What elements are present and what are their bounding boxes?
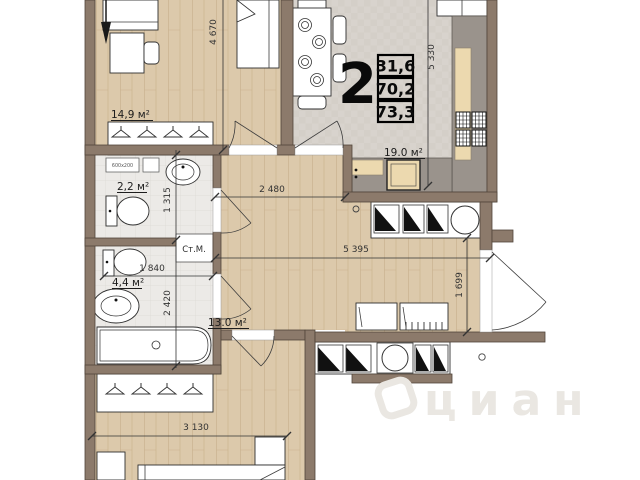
floorplan-drawing: 600x200 Ст.М.: [0, 0, 640, 480]
wall-bedroom-living: [281, 0, 293, 147]
washing-machine-niche: Ст.М.: [176, 234, 213, 262]
area-main-value: 70,2: [376, 80, 415, 99]
wall-bath-bottom: [85, 365, 221, 374]
floor-hallway: [221, 155, 345, 330]
watermark-text: циан: [424, 375, 596, 426]
chair: [298, 96, 326, 109]
bed: [103, 0, 158, 30]
dim-1315: 1 315: [163, 187, 173, 213]
cian-logo-icon: [376, 378, 416, 418]
floorplan-canvas: 600x200 Ст.М.: [0, 0, 640, 480]
label-wc: 2,2 м²: [117, 181, 149, 193]
dim-1699: 1 699: [455, 272, 465, 298]
label-bathroom: 4,4 м²: [112, 277, 144, 289]
dim-2480: 2 480: [259, 185, 285, 195]
dim-4670: 4 670: [209, 19, 219, 45]
wc-sink: [166, 159, 200, 185]
unit-spec: 2 31,6 70,2 73,3: [338, 52, 415, 122]
desk: [97, 452, 125, 480]
toilet-tank: [106, 196, 117, 226]
washer-circle: [451, 206, 479, 234]
kitchen-sink-unit: [387, 160, 420, 190]
wall-living-bottom: [343, 192, 497, 202]
closet-bottom: [315, 342, 450, 374]
dim-5395: 5 395: [343, 245, 369, 255]
closet-corridor-top: [371, 202, 482, 238]
toilet-tank: [103, 250, 114, 276]
watermark: циан: [376, 375, 596, 426]
toilet-bowl: [117, 197, 149, 225]
floor-bedroom-bottom-ext: [221, 340, 305, 374]
wall-entry-stub: [492, 230, 513, 242]
area-living-value: 31,6: [376, 57, 415, 76]
chair: [144, 42, 159, 64]
dining-table: [293, 8, 331, 96]
wall-bedroom2-right: [305, 330, 315, 480]
dim-5330: 5 330: [427, 44, 437, 70]
stove-burner-icon: [456, 112, 470, 128]
label-hallway: 13.0 м²: [208, 317, 247, 329]
vent-size-label: 600x200: [112, 163, 133, 169]
rooms-count: 2: [338, 52, 377, 117]
dim-1840: 1 840: [139, 264, 165, 274]
bathtub: [97, 327, 211, 364]
wardrobe-bottom: [97, 374, 213, 412]
wall-wc-hall: [213, 155, 221, 188]
wall-entry-bottom: [315, 332, 545, 342]
label-bedroom-top: 14,9 м²: [111, 109, 150, 121]
dim-2420: 2 420: [163, 290, 173, 316]
bath-sink: [93, 289, 139, 323]
washer-circle: [382, 345, 408, 371]
door-stop: [479, 354, 485, 360]
stove-burner-icon: [472, 112, 486, 128]
nightstand: [255, 437, 285, 465]
stove-burner-icon: [456, 130, 470, 146]
stove-burner-icon: [472, 130, 486, 146]
label-kitchen-living: 19.0 м²: [384, 147, 423, 159]
area-total-value: 73,3: [376, 103, 415, 122]
door-entry: [492, 252, 546, 330]
bed: [138, 465, 285, 480]
dim-3130: 3 130: [183, 423, 209, 433]
wall-wc-bath: [85, 238, 176, 246]
shoe-rack: [356, 303, 448, 330]
wall-outer-right: [487, 0, 497, 202]
chair: [333, 16, 346, 44]
wall-hall-bedroom2: [221, 330, 232, 340]
washing-machine-label: Ст.М.: [182, 245, 206, 255]
wall-entry-right: [480, 202, 492, 250]
wall-bedroom-bottom: [85, 145, 229, 155]
desk: [110, 33, 144, 73]
